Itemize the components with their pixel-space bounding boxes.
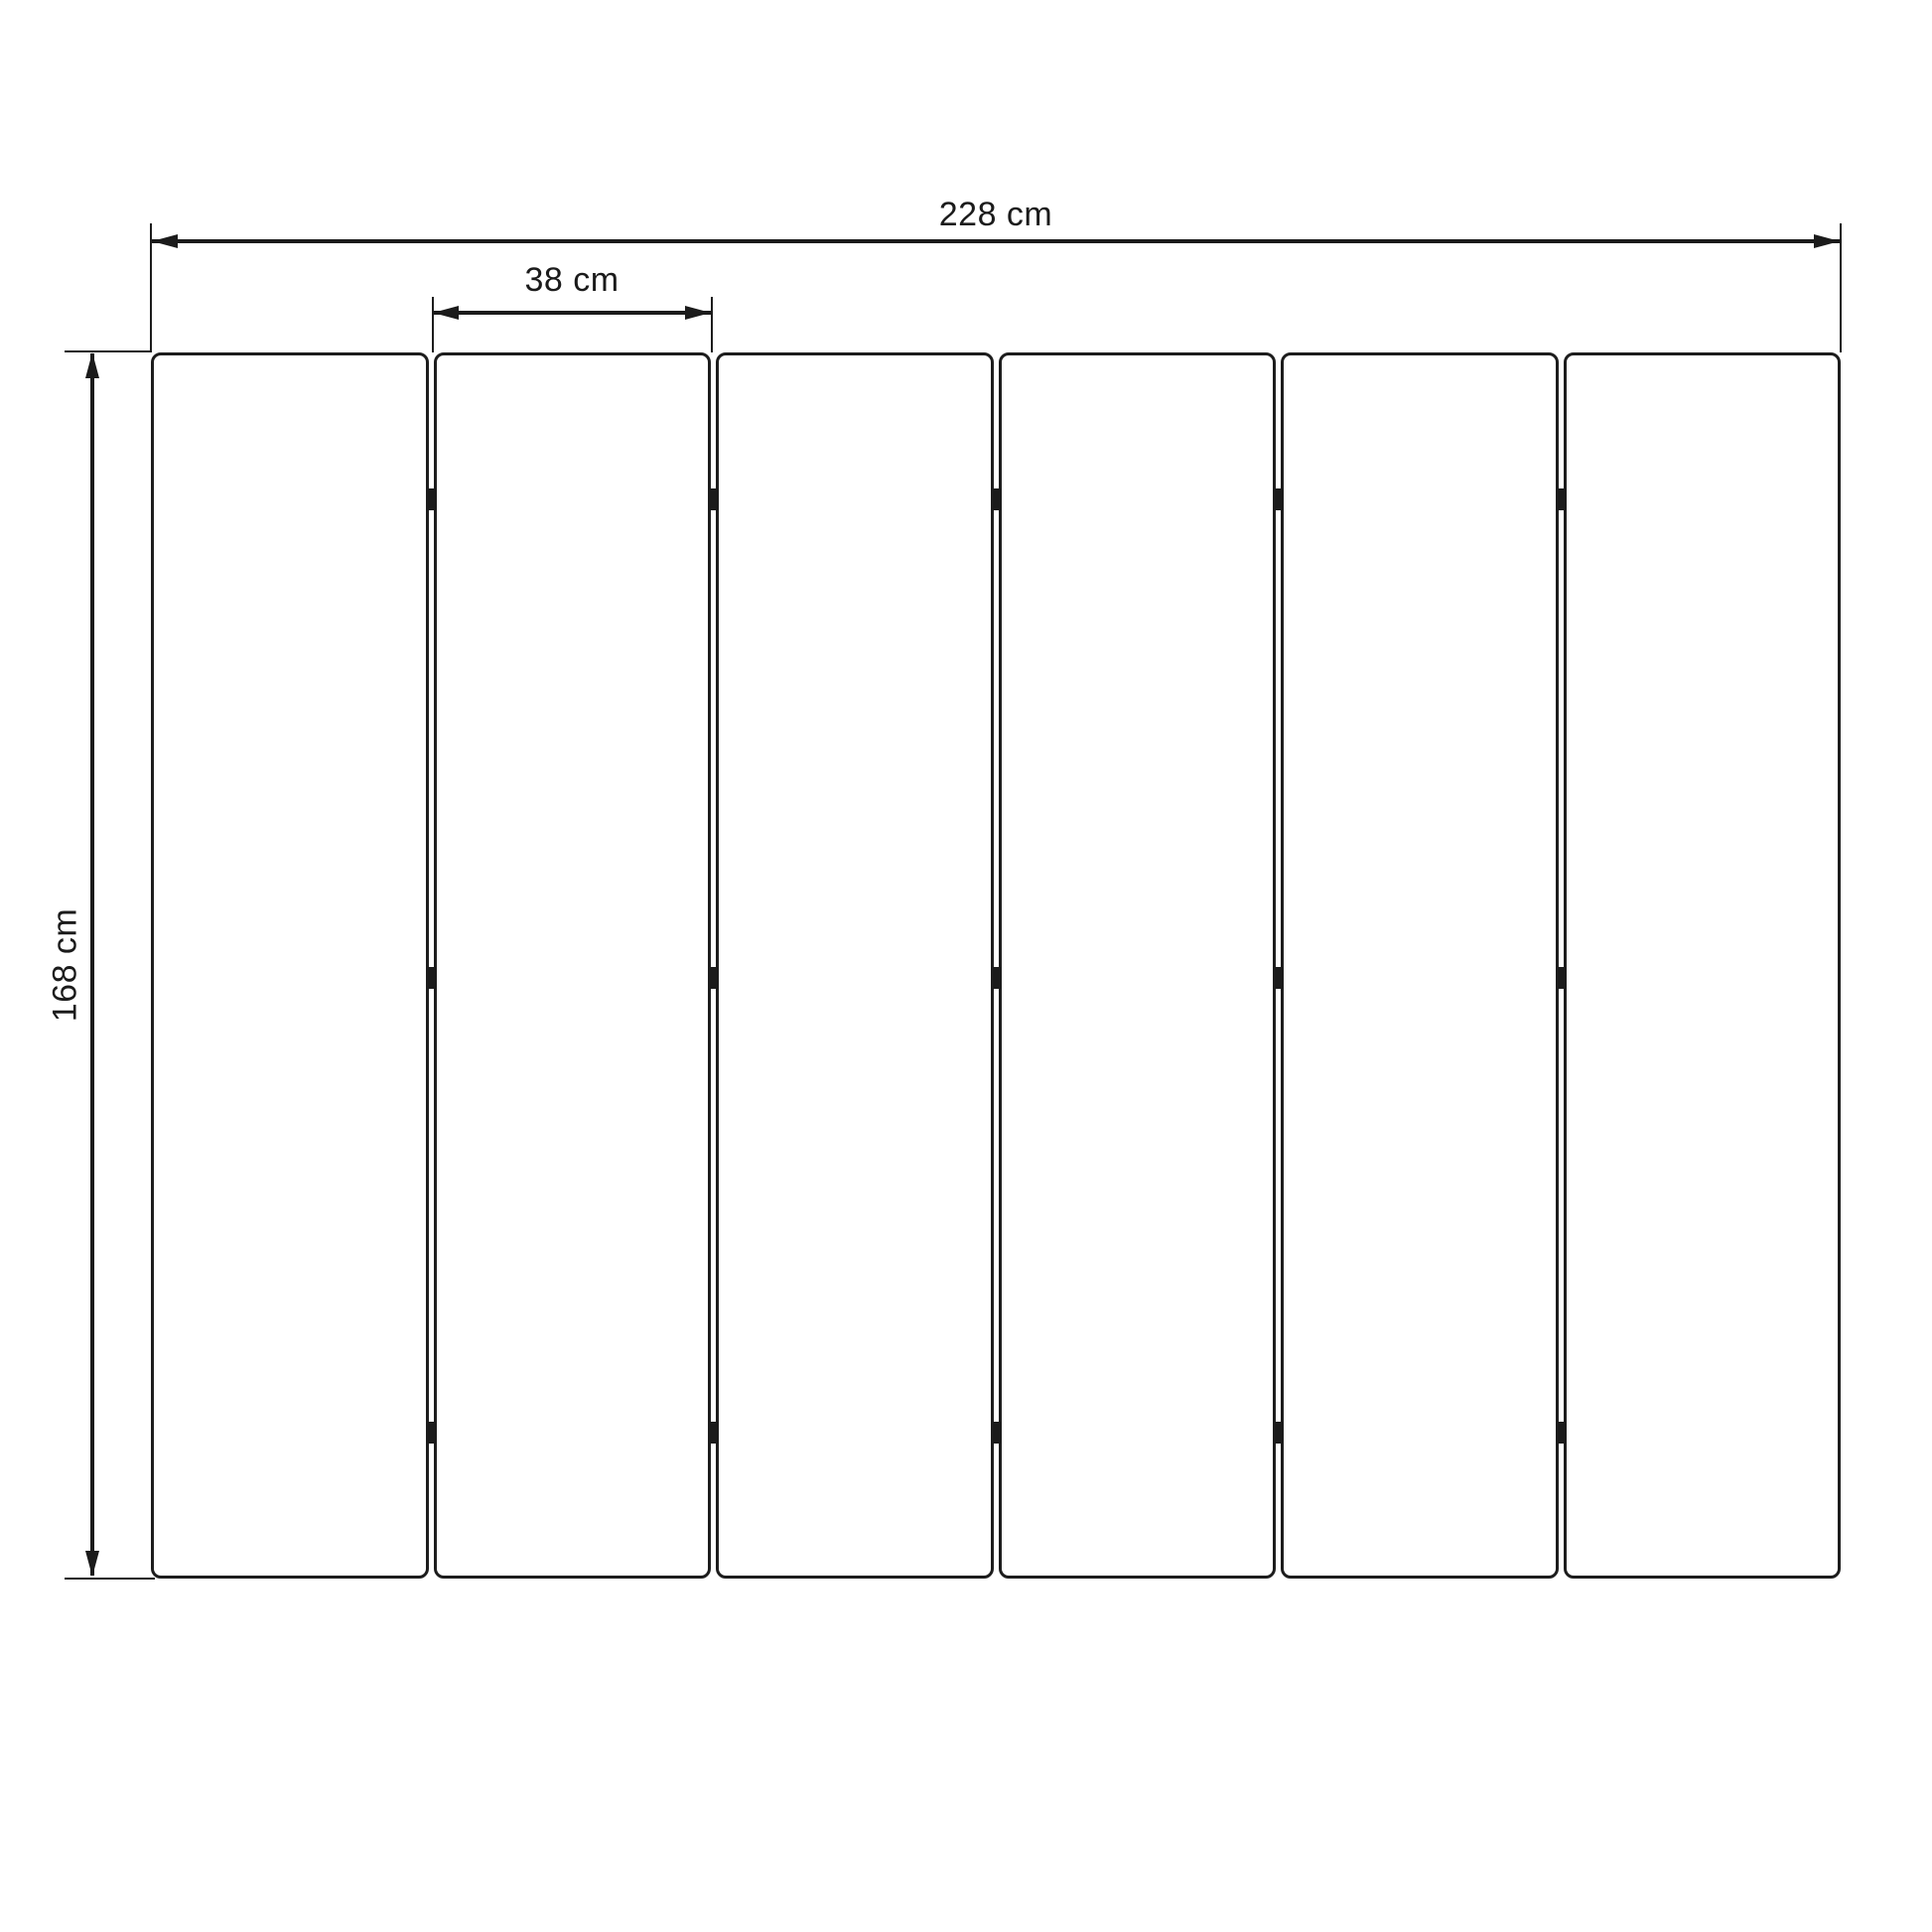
panel-connector-clip (1557, 488, 1566, 510)
panel-connector-clip (427, 488, 436, 510)
panel-6 (1564, 352, 1842, 1579)
panel-4 (999, 352, 1277, 1579)
panel-connector-clip (992, 1422, 1001, 1444)
panel-connector-clip (427, 967, 436, 989)
arrow-left-icon (152, 234, 178, 248)
panel-3 (716, 352, 994, 1579)
panel-width-label: 38 cm (524, 260, 619, 301)
panel-connector-clip (709, 488, 718, 510)
arrow-up-icon (85, 352, 99, 378)
total-width-label: 228 cm (939, 195, 1053, 235)
panel-2 (434, 352, 712, 1579)
panel-connector-clip (1274, 967, 1283, 989)
panel-connector-clip (1274, 1422, 1283, 1444)
panel-connector-clip (1274, 488, 1283, 510)
panel-connector-clip (709, 1422, 718, 1444)
panel-5 (1281, 352, 1559, 1579)
panel-width-dimension-line (433, 311, 711, 315)
extension-line-height-top (65, 350, 152, 352)
panel-connector-clip (1557, 967, 1566, 989)
arrow-left-icon (433, 306, 459, 320)
extension-line-panel-right (711, 297, 713, 352)
height-dimension-line (90, 353, 94, 1576)
arrow-down-icon (85, 1551, 99, 1577)
arrow-right-icon (1814, 234, 1840, 248)
panel-connector-clip (992, 967, 1001, 989)
panel-dimension-diagram: 228 cm 38 cm 168 cm (0, 0, 1932, 1932)
panel-connector-clip (427, 1422, 436, 1444)
panel-connector-clip (992, 488, 1001, 510)
extension-line-total-right (1840, 223, 1842, 352)
panel-1 (151, 352, 429, 1579)
panel-group (151, 352, 1841, 1579)
height-label: 168 cm (46, 908, 86, 1023)
extension-line-height-bottom (65, 1578, 155, 1580)
panel-connector-clip (1557, 1422, 1566, 1444)
total-width-dimension-line (152, 239, 1840, 243)
panel-connector-clip (709, 967, 718, 989)
arrow-right-icon (685, 306, 711, 320)
